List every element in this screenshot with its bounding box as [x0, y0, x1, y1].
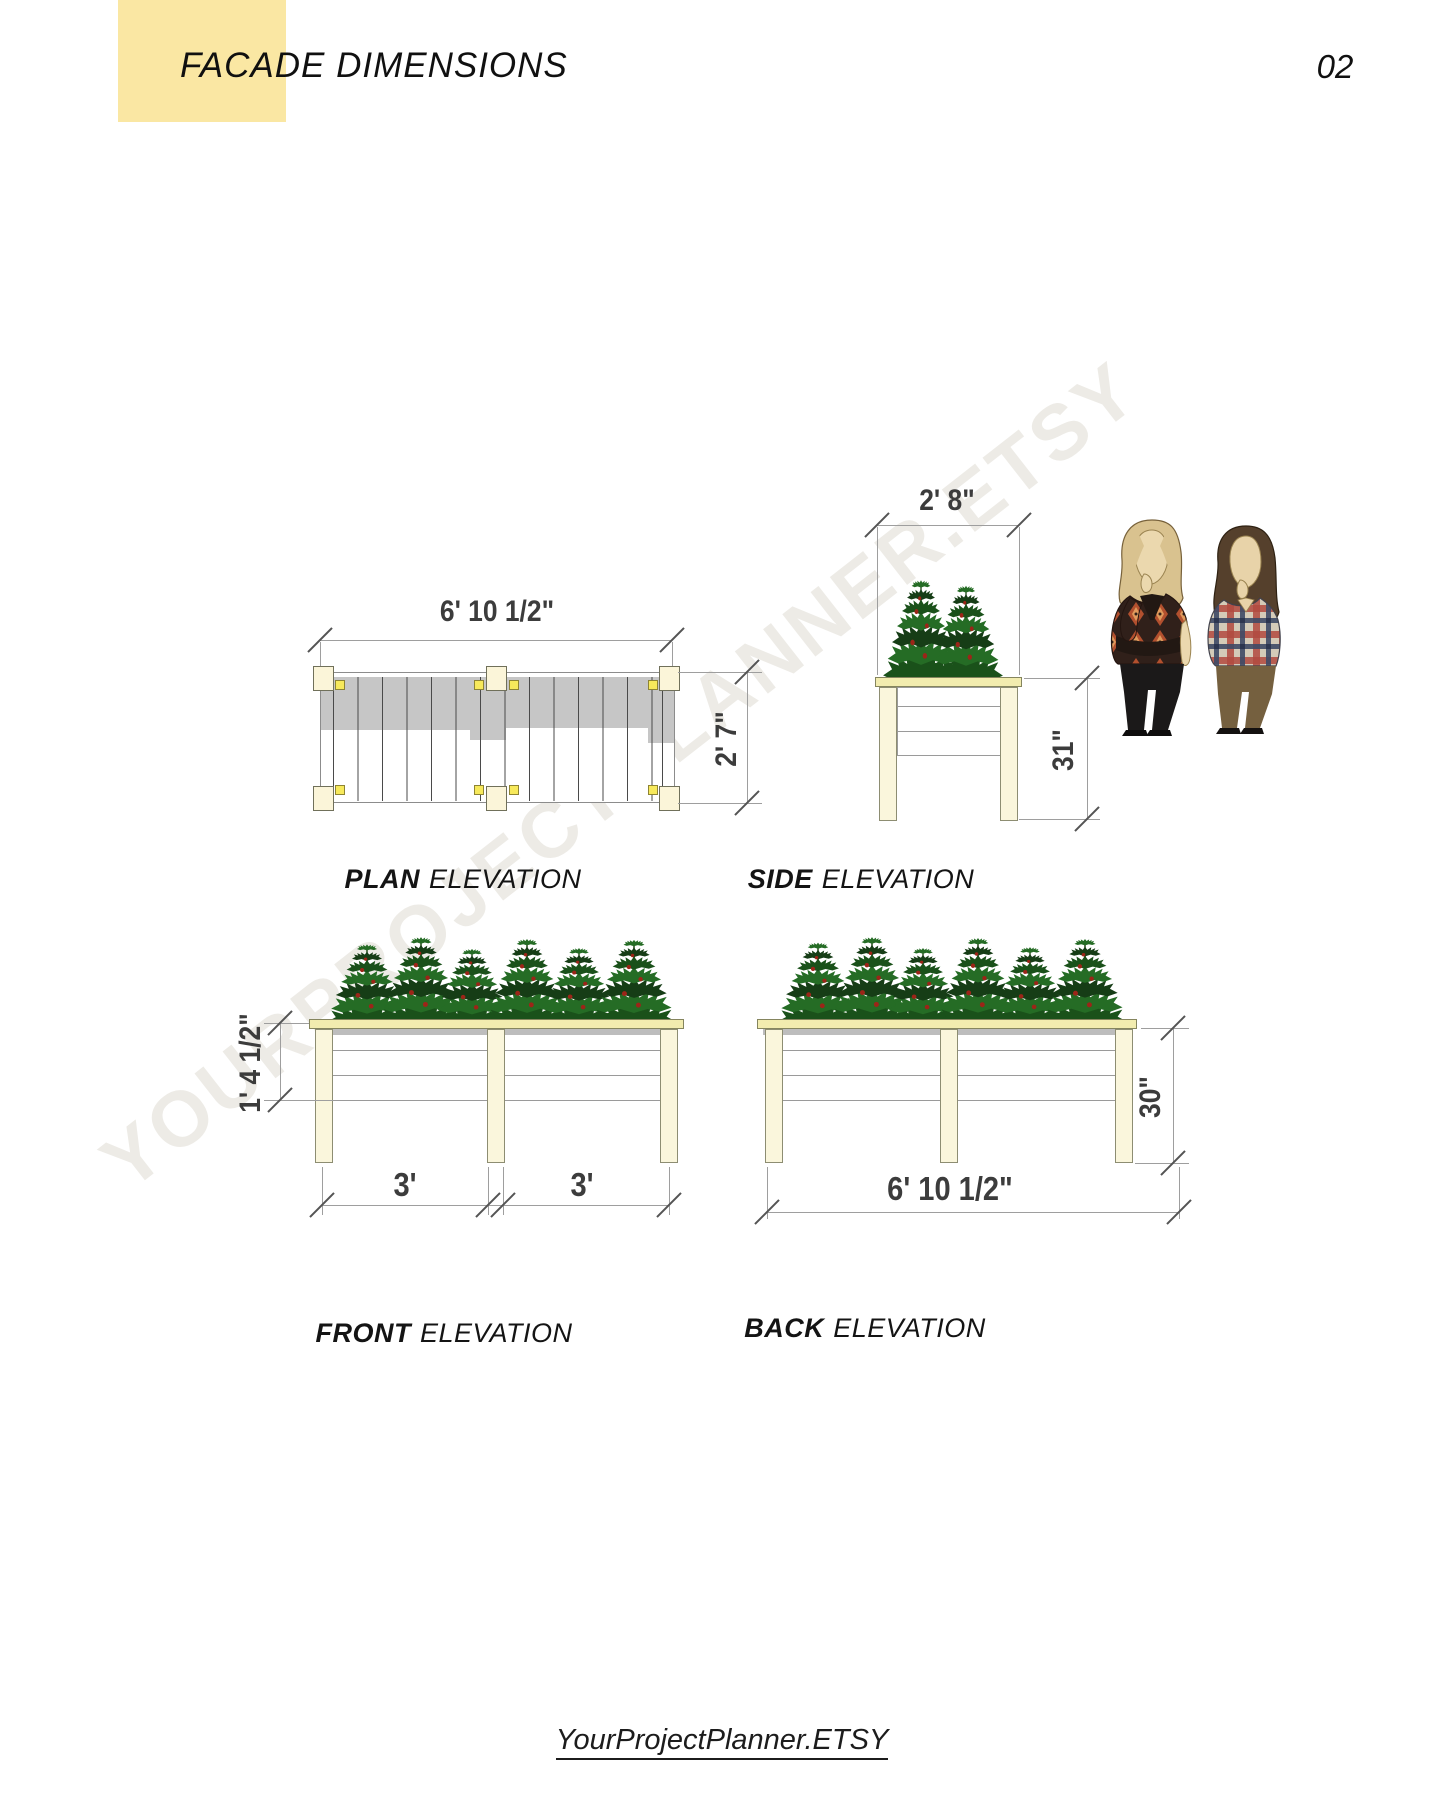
extension-line: [264, 1023, 309, 1024]
board-seam: [783, 1075, 940, 1076]
view-label-bold: PLAN: [344, 864, 420, 894]
board-seam: [783, 1050, 940, 1051]
page-number: 02: [1295, 48, 1375, 86]
view-label-bold: FRONT: [315, 1318, 410, 1348]
planter-leg: [765, 1029, 783, 1163]
plan-depth-dimension: 2' 7": [710, 673, 744, 805]
extension-line: [877, 527, 878, 675]
planter-top-cap: [875, 677, 1022, 687]
extension-line: [322, 1167, 323, 1215]
side-height-dimension: 31": [1047, 684, 1081, 816]
extension-line: [1019, 527, 1020, 675]
dimension-line: [320, 640, 672, 641]
back-width-dimension: 6' 10 1/2": [840, 1170, 1060, 1208]
planter-leg: [879, 687, 897, 821]
view-label-bold: BACK: [744, 1313, 824, 1343]
hardware-block: [509, 785, 519, 795]
dimension-line: [280, 1023, 281, 1100]
front-box-height-dimension: 1' 4 1/2": [234, 984, 268, 1142]
dimension-line: [322, 1205, 669, 1206]
footer-shop-link[interactable]: YourProjectPlanner.ETSY: [472, 1724, 972, 1757]
back-view-label: BACKELEVATION: [710, 1313, 1020, 1344]
hardware-block: [474, 785, 484, 795]
page-title: FACADE DIMENSIONS: [180, 46, 568, 86]
back-height-dimension: 30": [1134, 1040, 1168, 1154]
extension-line: [264, 1100, 333, 1101]
view-label-rest: ELEVATION: [822, 864, 975, 894]
view-label-rest: ELEVATION: [833, 1313, 986, 1343]
dimension-line: [1087, 678, 1088, 819]
side-width-dimension: 2' 8": [877, 484, 1018, 518]
planter-board-panel: [897, 687, 1001, 756]
view-label-rest: ELEVATION: [429, 864, 582, 894]
planter-leg: [1000, 687, 1018, 821]
plan-view-label: PLANELEVATION: [313, 864, 613, 895]
planter-leg: [1115, 1029, 1133, 1163]
extension-line: [488, 1167, 489, 1215]
extension-line: [503, 1167, 504, 1215]
extension-line: [1024, 678, 1100, 679]
scale-figure-woman-brunette: [1198, 524, 1294, 738]
board-seam: [897, 706, 1001, 707]
planter-leg: [315, 1029, 333, 1163]
hardware-block: [648, 680, 658, 690]
planter-leg: [940, 1029, 958, 1163]
dimension-line: [877, 525, 1019, 526]
board-seam: [333, 1050, 487, 1051]
extension-line: [1141, 1028, 1189, 1029]
corner-post: [659, 666, 680, 691]
hardware-block: [335, 680, 345, 690]
tomato-plant-illustration: [928, 576, 1004, 680]
view-label-bold: SIDE: [748, 864, 813, 894]
scale-figure-woman-blonde: [1100, 516, 1204, 740]
planter-leg: [487, 1029, 505, 1163]
board-seam: [958, 1050, 1115, 1051]
hardware-block: [509, 680, 519, 690]
middle-post: [486, 666, 507, 691]
side-view-label: SIDEELEVATION: [731, 864, 991, 895]
planter-top-cap: [757, 1019, 1137, 1029]
dimension-line: [747, 672, 748, 803]
hardware-block: [335, 785, 345, 795]
dimension-line: [1173, 1028, 1174, 1163]
middle-post: [486, 786, 507, 811]
hardware-block: [648, 785, 658, 795]
tomato-plant-illustration: [590, 931, 678, 1026]
planter-leg: [660, 1029, 678, 1163]
plan-document-page: YOURPROJECTPLANNER.ETSY FACADE DIMENSION…: [0, 0, 1445, 1806]
extension-line: [669, 1167, 670, 1215]
dimension-line: [767, 1212, 1179, 1213]
planter-top-cap: [309, 1019, 684, 1029]
hardware-block: [474, 680, 484, 690]
view-label-rest: ELEVATION: [420, 1318, 573, 1348]
footer-link-text[interactable]: YourProjectPlanner.ETSY: [556, 1724, 889, 1760]
tomato-plant-illustration: [1041, 930, 1129, 1026]
board-seam: [897, 731, 1001, 732]
extension-line: [1135, 1163, 1189, 1164]
board-seam: [505, 1050, 660, 1051]
front-bay-right-dimension: 3': [547, 1166, 617, 1204]
plan-deck-slats: [333, 677, 663, 801]
front-bay-left-dimension: 3': [370, 1166, 440, 1204]
board-seam: [505, 1075, 660, 1076]
board-seam: [333, 1075, 487, 1076]
corner-post: [659, 786, 680, 811]
corner-post: [313, 666, 334, 691]
corner-post: [313, 786, 334, 811]
board-seam: [958, 1075, 1115, 1076]
plan-width-dimension: 6' 10 1/2": [387, 595, 607, 629]
front-view-label: FRONTELEVATION: [294, 1318, 594, 1349]
